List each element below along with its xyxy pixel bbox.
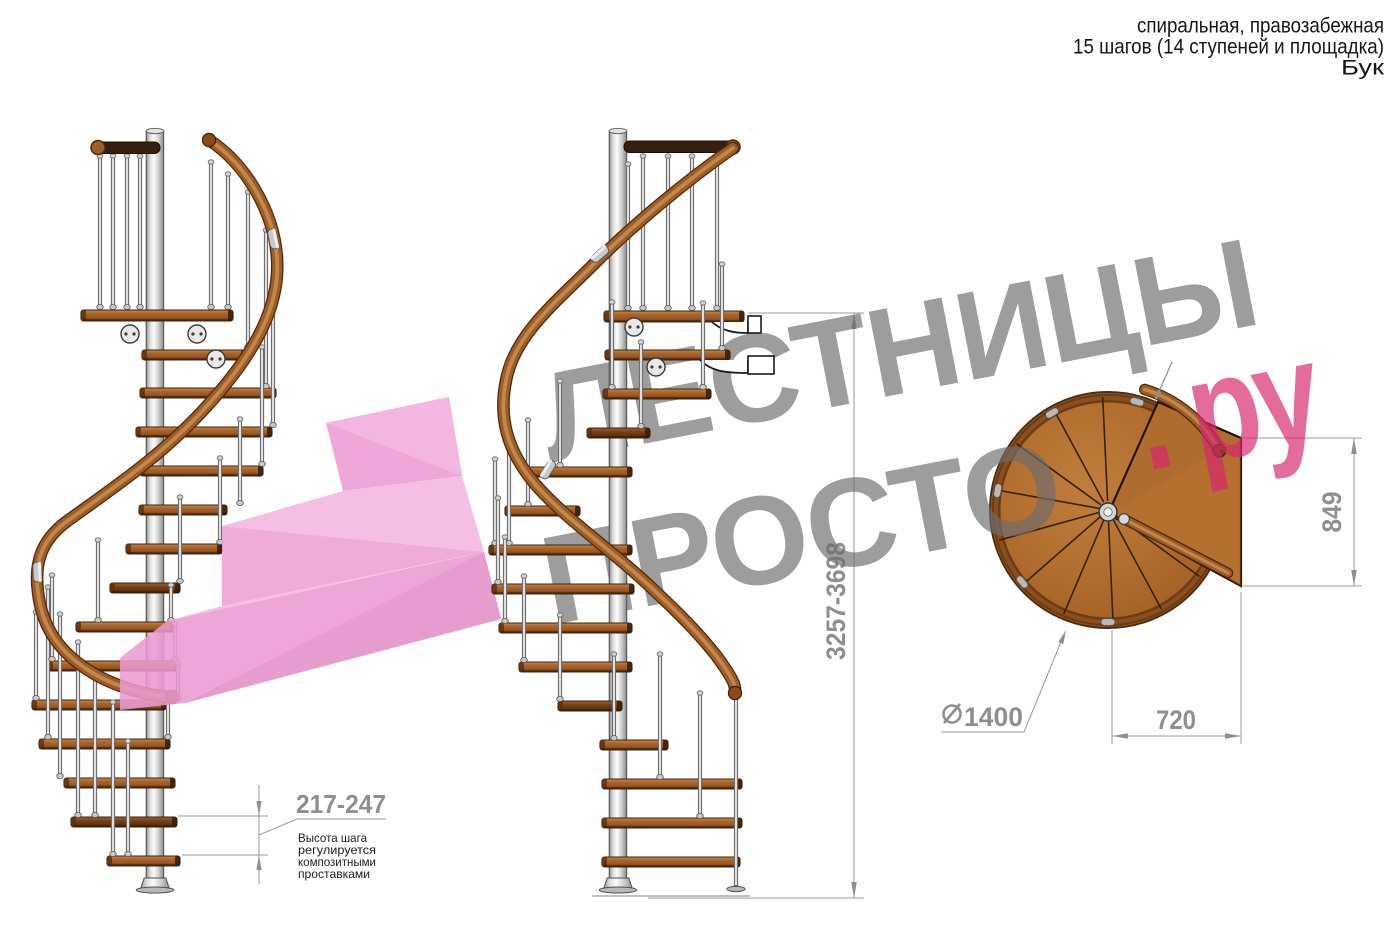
svg-text:Бук: Бук xyxy=(1341,56,1385,80)
svg-text:проставками: проставками xyxy=(298,867,370,881)
svg-text:849: 849 xyxy=(1317,492,1347,533)
svg-text:1400: 1400 xyxy=(964,702,1023,732)
svg-text:720: 720 xyxy=(1156,705,1196,735)
svg-text:15 шагов (14 ступеней и площад: 15 шагов (14 ступеней и площадка) xyxy=(1073,35,1384,59)
svg-text:217-247: 217-247 xyxy=(296,789,386,819)
